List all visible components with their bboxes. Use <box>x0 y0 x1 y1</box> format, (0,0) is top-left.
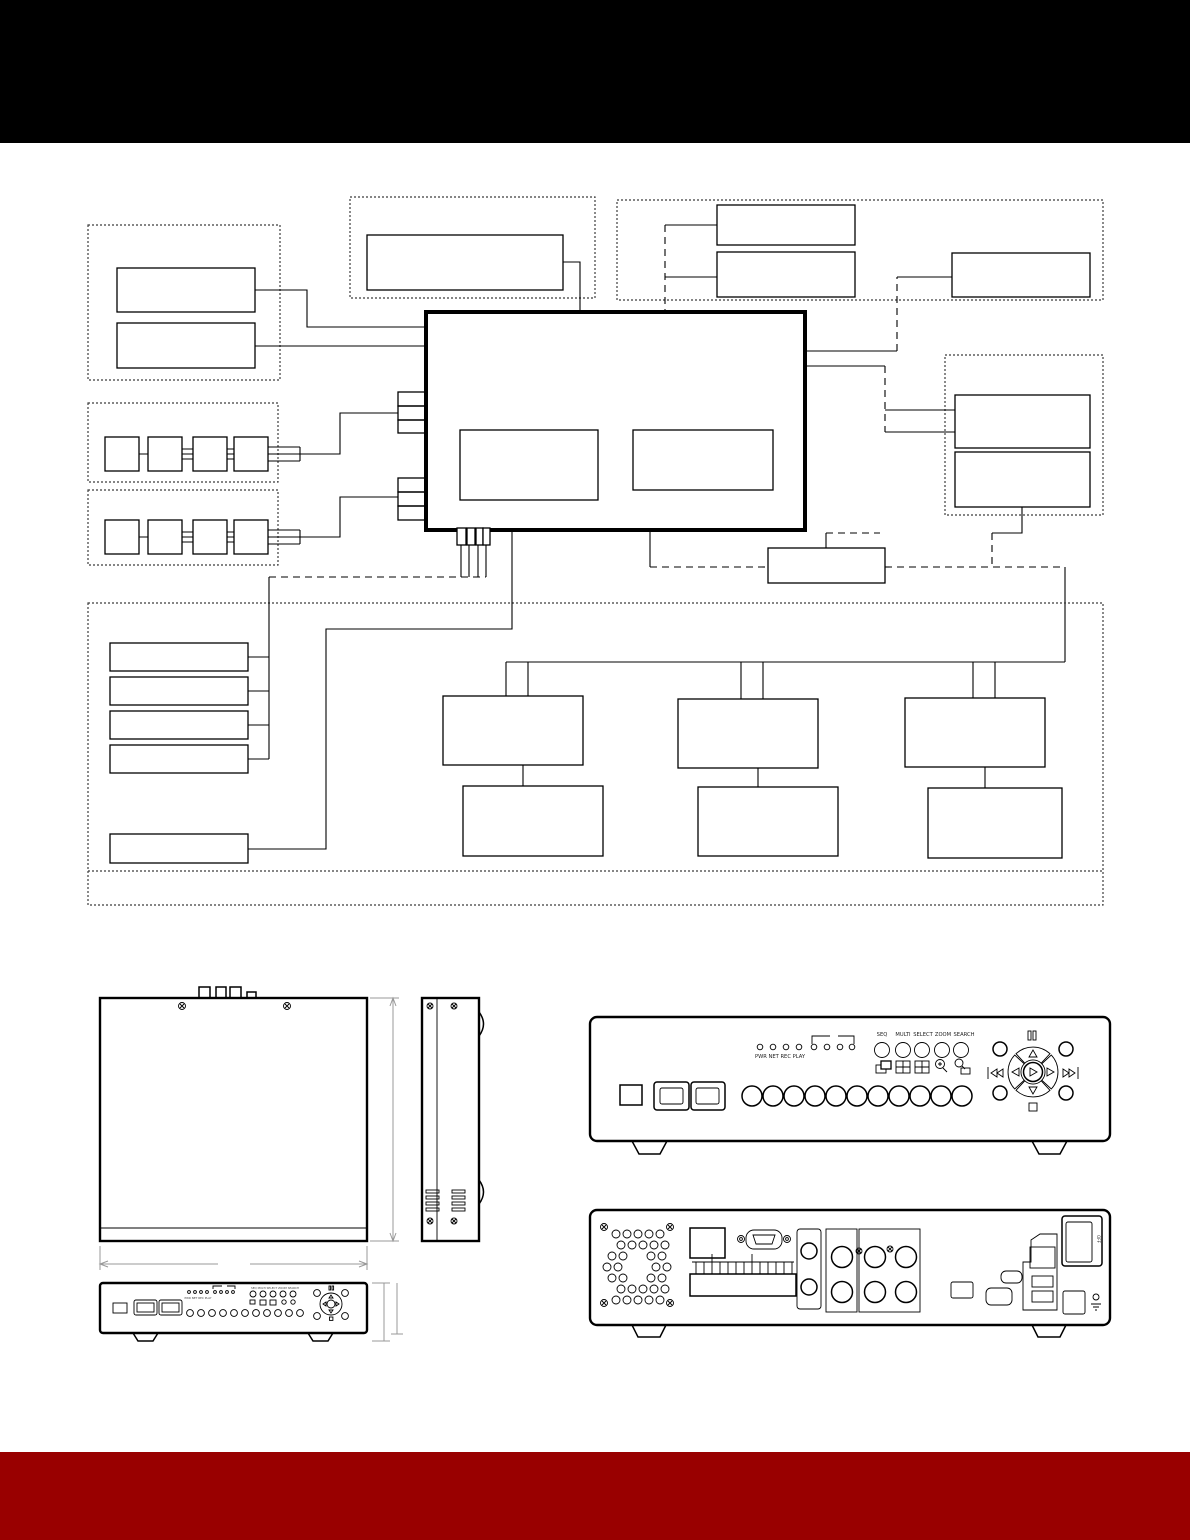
multi-button-label: MULTI <box>895 1032 911 1038</box>
corner-button <box>993 1086 1007 1100</box>
nav-pad <box>314 1286 349 1320</box>
corner-button <box>1059 1042 1073 1056</box>
power-inlet <box>1063 1291 1085 1314</box>
block-box <box>717 252 855 297</box>
connector-tab <box>230 987 241 998</box>
top-left-module <box>88 225 426 380</box>
system-block-diagram <box>88 197 1103 905</box>
led-indicators: PWR NET REC PLAY <box>184 1286 235 1300</box>
play-button <box>1024 1063 1043 1082</box>
video-out-cluster <box>1023 1234 1057 1310</box>
mode-buttons: SEQ MULTI SELECT ZOOM SEARCH <box>250 1286 299 1305</box>
top-view-drawing <box>100 987 399 1270</box>
fast-forward-icon <box>1063 1067 1078 1079</box>
usb-ports <box>951 1271 1022 1305</box>
relay-box <box>650 530 1065 662</box>
top-right-module <box>617 200 1103 351</box>
pause-icon <box>1028 1031 1036 1040</box>
scanned-page-artwork: PWR NET REC PLAY SEQ MULTI SELECT ZOOM S… <box>0 0 1190 1540</box>
block-box <box>678 699 818 768</box>
channel-buttons <box>742 1086 972 1106</box>
small-front-view-drawing: PWR NET REC PLAY SEQ MULTI SELECT ZOOM S… <box>100 1283 403 1341</box>
multi-grid-icon <box>915 1061 929 1073</box>
side-view-drawing <box>422 998 484 1241</box>
led-caption: PWR NET REC PLAY <box>755 1054 806 1060</box>
block-box <box>633 430 773 490</box>
usb-ports <box>654 1082 725 1110</box>
corner-button <box>993 1042 1007 1056</box>
block-box <box>717 205 855 245</box>
select-button-label: SELECT <box>913 1032 933 1038</box>
vent-slots <box>426 1190 465 1211</box>
block-box <box>367 235 563 290</box>
play-icon <box>1030 1068 1037 1076</box>
block-box <box>110 745 248 773</box>
block-box <box>110 711 248 739</box>
block-box <box>955 452 1090 507</box>
screw-icon <box>179 1003 291 1010</box>
hdmi-port <box>1030 1247 1055 1268</box>
ir-window <box>620 1085 642 1105</box>
block-box <box>117 323 255 368</box>
screw-icon <box>601 1224 674 1307</box>
fan-grille <box>601 1224 674 1307</box>
ethernet-port <box>690 1228 725 1258</box>
connector-tab <box>216 987 226 998</box>
ir-window <box>113 1303 127 1313</box>
zoom-button-label: ZOOM <box>935 1032 951 1038</box>
nav-pad <box>988 1031 1078 1111</box>
search-button-label: SEARCH <box>954 1032 975 1038</box>
block-box <box>110 643 248 671</box>
block-box <box>955 395 1090 448</box>
block-box <box>460 430 598 500</box>
zoom-in-icon <box>936 1060 948 1073</box>
usb-ports <box>134 1300 182 1315</box>
front-panel-view: PWR NET REC PLAY SEQ MULTI SELECT ZOOM S… <box>590 1017 1110 1154</box>
block-box <box>110 834 248 863</box>
bnc-output-column <box>797 1229 821 1309</box>
block-box <box>463 786 603 856</box>
vga-port <box>738 1230 791 1249</box>
right-module <box>805 355 1103 567</box>
bottom-module <box>88 530 1103 905</box>
connector-tab <box>199 987 210 998</box>
sequence-icon <box>876 1061 891 1073</box>
mode-buttons: SEQ MULTI SELECT ZOOM SEARCH <box>875 1032 975 1074</box>
block-box <box>905 698 1045 767</box>
device-foot <box>632 1325 666 1337</box>
block-box <box>443 696 583 765</box>
power-switch-label: OFF <box>1096 1235 1101 1243</box>
device-foot <box>1032 1141 1067 1154</box>
bnc-input-group <box>826 1229 920 1312</box>
dimension-line-height <box>370 998 399 1241</box>
block-box <box>698 787 838 856</box>
corner-button <box>1059 1086 1073 1100</box>
block-box <box>928 788 1062 858</box>
device-chain-2 <box>88 490 398 565</box>
device-foot <box>1032 1325 1066 1337</box>
stop-icon <box>1029 1103 1037 1111</box>
central-controller-box <box>398 312 805 545</box>
led-caption: PWR NET REC PLAY <box>184 1296 211 1300</box>
mode-caption: SEQ MULTI SELECT ZOOM SEARCH <box>251 1286 299 1290</box>
block-box <box>117 268 255 312</box>
screw-icon <box>427 1003 457 1224</box>
dimension-line-width <box>100 1246 367 1270</box>
top-middle-module <box>350 197 595 312</box>
terminal-block <box>690 1254 796 1296</box>
seq-button-label: SEQ <box>877 1032 888 1038</box>
device-foot <box>632 1141 667 1154</box>
led-indicators: PWR NET REC PLAY <box>755 1036 855 1060</box>
dimension-line-front-height <box>372 1283 403 1341</box>
power-switch: OFF <box>1062 1216 1102 1266</box>
block-box <box>110 677 248 705</box>
quad-grid-icon <box>896 1061 910 1073</box>
search-icon <box>955 1059 970 1074</box>
block-box <box>952 253 1090 297</box>
device-chain-1 <box>88 403 398 482</box>
rewind-icon <box>988 1067 1003 1079</box>
channel-buttons <box>187 1310 304 1317</box>
back-panel-view: OFF <box>590 1210 1110 1337</box>
ground-terminal <box>1091 1294 1101 1310</box>
